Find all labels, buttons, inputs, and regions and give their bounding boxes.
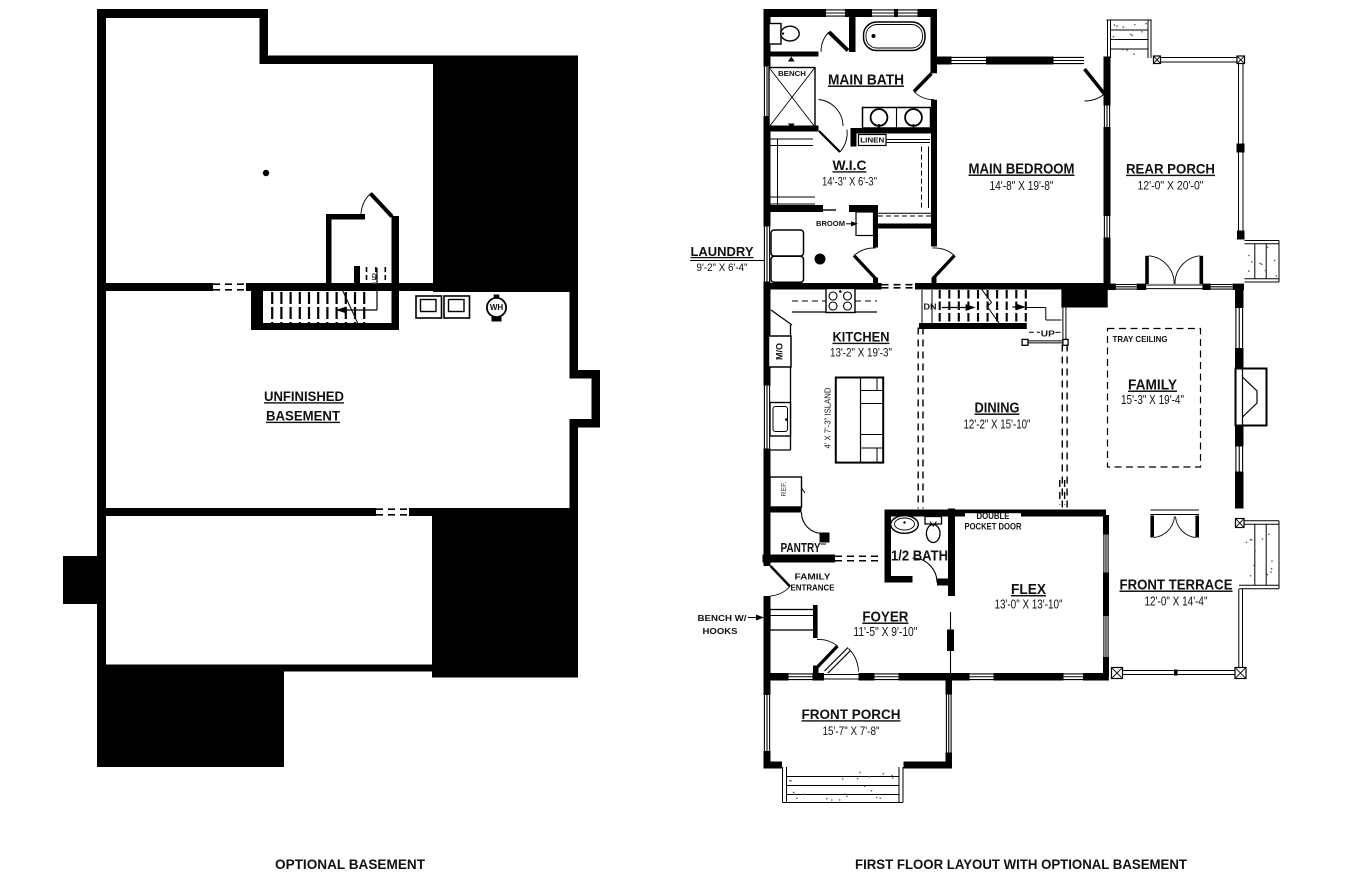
svg-text:9'-2" X 6'-4": 9'-2" X 6'-4" bbox=[697, 262, 748, 274]
svg-text:W.I.C: W.I.C bbox=[833, 157, 867, 173]
svg-text:DOUBLE: DOUBLE bbox=[977, 511, 1010, 521]
svg-text:REF.: REF. bbox=[781, 481, 788, 496]
svg-text:ENTRANCE: ENTRANCE bbox=[791, 582, 835, 592]
svg-text:BROOM: BROOM bbox=[816, 219, 845, 228]
svg-text:15'-7" X 7'-8": 15'-7" X 7'-8" bbox=[823, 724, 880, 738]
svg-text:15'-3" X 19'-4": 15'-3" X 19'-4" bbox=[1121, 393, 1184, 407]
svg-text:POCKET DOOR: POCKET DOOR bbox=[965, 521, 1022, 531]
svg-text:MAIN BEDROOM: MAIN BEDROOM bbox=[969, 160, 1075, 177]
svg-text:13'-0" X 13'-10": 13'-0" X 13'-10" bbox=[995, 597, 1063, 611]
svg-text:FRONT TERRACE: FRONT TERRACE bbox=[1120, 576, 1233, 593]
svg-text:UP: UP bbox=[371, 272, 380, 284]
svg-text:LAUNDRY: LAUNDRY bbox=[691, 244, 754, 259]
svg-text:HOOKS: HOOKS bbox=[703, 626, 738, 636]
svg-text:14'-8" X 19'-8": 14'-8" X 19'-8" bbox=[990, 179, 1054, 193]
svg-text:4' X 7'-3" ISLAND: 4' X 7'-3" ISLAND bbox=[824, 387, 833, 448]
svg-text:FAMILY: FAMILY bbox=[795, 571, 831, 581]
svg-text:12'-0" X 14'-4": 12'-0" X 14'-4" bbox=[1145, 594, 1208, 608]
svg-text:BENCH: BENCH bbox=[778, 69, 806, 78]
svg-text:FOYER: FOYER bbox=[862, 608, 908, 625]
svg-text:FIRST FLOOR LAYOUT WITH OPTION: FIRST FLOOR LAYOUT WITH OPTIONAL BASEMEN… bbox=[855, 857, 1188, 872]
svg-text:12'-2" X 15'-10": 12'-2" X 15'-10" bbox=[964, 417, 1031, 431]
svg-text:UP: UP bbox=[1041, 329, 1056, 338]
svg-text:13'-2" X 19'-3": 13'-2" X 19'-3" bbox=[830, 346, 892, 360]
svg-text:KITCHEN: KITCHEN bbox=[833, 329, 890, 345]
svg-text:PANTRY: PANTRY bbox=[781, 541, 822, 555]
svg-text:14'-3" X 6'-3": 14'-3" X 6'-3" bbox=[822, 177, 877, 189]
svg-text:FAMILY: FAMILY bbox=[1128, 376, 1177, 393]
svg-text:MAIN BATH: MAIN BATH bbox=[828, 71, 904, 88]
svg-text:1/2 BATH: 1/2 BATH bbox=[891, 547, 948, 564]
svg-text:UNFINISHED: UNFINISHED bbox=[264, 388, 344, 404]
svg-text:BENCH W/: BENCH W/ bbox=[698, 613, 748, 623]
svg-text:BASEMENT: BASEMENT bbox=[266, 408, 340, 424]
svg-text:DINING: DINING bbox=[975, 399, 1020, 416]
svg-text:11'-5" X 9'-10": 11'-5" X 9'-10" bbox=[853, 625, 917, 639]
svg-text:LINEN: LINEN bbox=[860, 135, 884, 144]
svg-text:FLEX: FLEX bbox=[1011, 581, 1046, 598]
svg-text:REAR PORCH: REAR PORCH bbox=[1126, 161, 1215, 177]
svg-text:FRONT PORCH: FRONT PORCH bbox=[802, 706, 901, 722]
svg-text:OPTIONAL BASEMENT: OPTIONAL BASEMENT bbox=[275, 857, 426, 872]
svg-text:12'-0" X 20'-0": 12'-0" X 20'-0" bbox=[1138, 179, 1204, 193]
svg-text:WH: WH bbox=[490, 303, 504, 312]
svg-text:M/O: M/O bbox=[774, 343, 784, 360]
svg-text:TRAY CEILING: TRAY CEILING bbox=[1113, 334, 1168, 344]
svg-text:DN: DN bbox=[924, 303, 937, 312]
